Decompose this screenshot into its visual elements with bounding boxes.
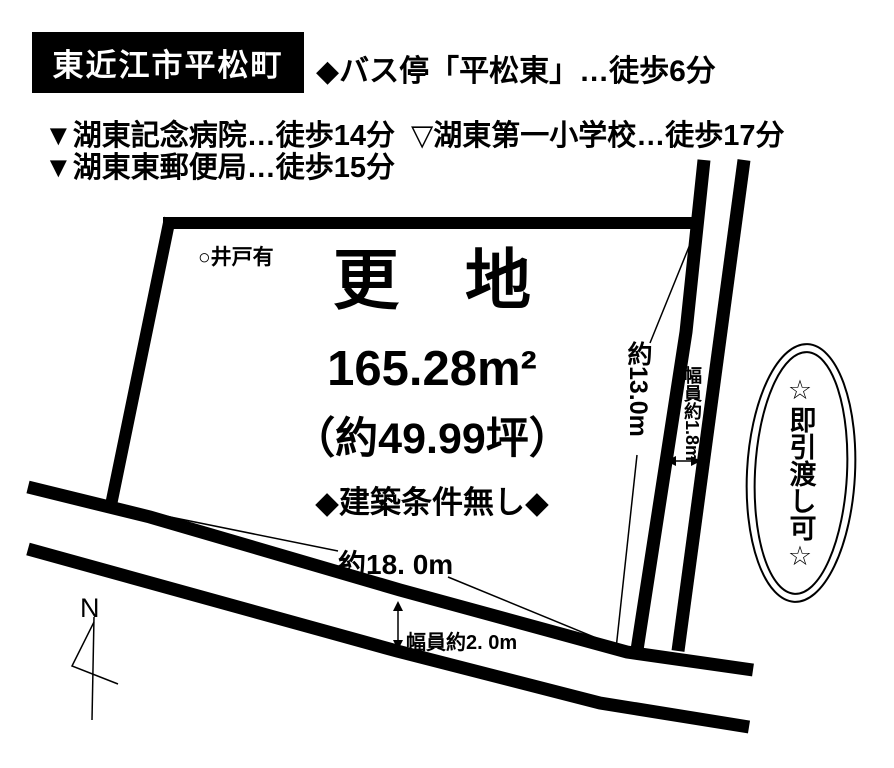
building-condition-note: ◆建築条件無し◆ xyxy=(230,477,634,522)
north-label: N xyxy=(80,593,100,624)
area-square-meters: 165.28m² xyxy=(250,341,614,397)
east-boundary-dimension: 約13.0m xyxy=(620,341,656,437)
south-boundary-dimension: 約18. 0m xyxy=(338,543,453,583)
facility-school: ▽湖東第一小学校…徒歩17分 xyxy=(411,112,785,154)
well-note: ○井戸有 xyxy=(198,241,274,271)
land-status: 更 地 xyxy=(272,244,592,317)
area-tsubo: （約49.99坪） xyxy=(230,404,634,466)
land-plot-diagram: 東近江市平松町 ◆バス停「平松東」…徒歩6分 ▼湖東記念病院…徒歩14分 ▽湖東… xyxy=(0,0,894,768)
facility-post-office: ▼湖東東郵便局…徒歩15分 xyxy=(44,144,395,186)
handover-badge-text: ☆即引渡し可☆ xyxy=(773,347,829,599)
south-road-width-arrow xyxy=(393,601,403,650)
location-title-box: 東近江市平松町 xyxy=(32,32,304,93)
location-title: 東近江市平松町 xyxy=(53,40,284,85)
north-arrow xyxy=(72,617,118,720)
south-road-width-label: 幅員約2. 0m xyxy=(406,626,517,655)
east-road-width-label: 幅員約1.8m xyxy=(679,366,705,461)
plot-west-boundary xyxy=(111,218,170,505)
bus-access-note: ◆バス停「平松東」…徒歩6分 xyxy=(316,46,716,90)
